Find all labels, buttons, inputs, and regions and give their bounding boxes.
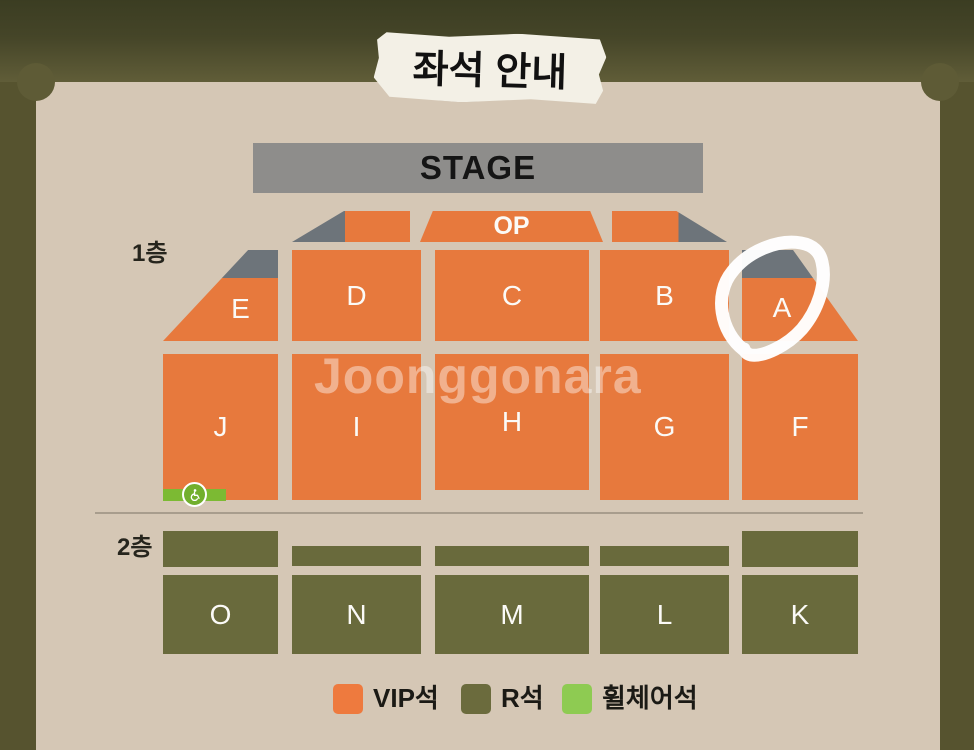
section-label-e: E <box>231 293 250 325</box>
section-J: J <box>163 354 278 500</box>
section-label-i: I <box>353 411 361 443</box>
r-seat-swatch <box>461 684 491 714</box>
hand-drawn-circle-annotation <box>706 230 846 365</box>
floor1-label: 1층 <box>132 233 167 268</box>
section-label-n: N <box>346 599 366 631</box>
wheelchair-icon <box>188 488 201 501</box>
legend-item-wheelchair: 휠체어석 <box>562 683 698 714</box>
section-OP: OP <box>420 211 603 242</box>
legend: VIP석 R석 휠체어석 <box>0 683 974 714</box>
section-label-h: H <box>502 406 522 438</box>
section-K: K <box>742 575 858 654</box>
section-label-op: OP <box>493 212 529 241</box>
panel-corner-notch-right <box>921 63 959 101</box>
divider-line <box>95 512 863 514</box>
section-label-l: L <box>657 599 673 631</box>
wheelchair-seat-swatch <box>562 684 592 714</box>
legend-item-vip: VIP석 <box>333 683 439 714</box>
panel-corner-notch-left <box>17 63 55 101</box>
stage-label: STAGE <box>420 149 536 187</box>
section-L: L <box>600 575 729 654</box>
floor2-label: 2층 <box>117 527 152 562</box>
section-label-f: F <box>791 411 808 443</box>
section-M-strip <box>435 546 589 566</box>
section-label-k: K <box>791 599 810 631</box>
section-label-o: O <box>210 599 232 631</box>
section-M: M <box>435 575 589 654</box>
title-tape: 좌석 안내 <box>373 30 607 106</box>
section-label-j: J <box>214 411 228 443</box>
section-label-g: G <box>654 411 676 443</box>
legend-label-r: R석 <box>501 683 544 714</box>
section-N-strip <box>292 546 421 566</box>
page-title: 좌석 안내 <box>412 38 568 98</box>
section-O-strip <box>163 531 278 567</box>
vip-seat-swatch <box>333 684 363 714</box>
legend-item-r: R석 <box>461 683 544 714</box>
section-D: D <box>292 250 421 341</box>
section-K-strip <box>742 531 858 567</box>
stage: STAGE <box>253 143 703 193</box>
section-L-strip <box>600 546 729 566</box>
section-label-d: D <box>346 280 366 312</box>
section-F: F <box>742 354 858 500</box>
section-label-c: C <box>502 280 522 312</box>
section-N: N <box>292 575 421 654</box>
wheelchair-badge <box>182 482 207 507</box>
seating-chart: 좌석 안내 STAGE OP 1층 E D C B A J I H G F <box>0 0 974 750</box>
section-label-m: M <box>500 599 523 631</box>
section-C: C <box>435 250 589 341</box>
section-O: O <box>163 575 278 654</box>
watermark: Joonggonara <box>314 347 642 405</box>
section-label-b: B <box>655 280 674 312</box>
legend-label-wheelchair: 휠체어석 <box>602 683 698 714</box>
legend-label-vip: VIP석 <box>373 683 439 714</box>
